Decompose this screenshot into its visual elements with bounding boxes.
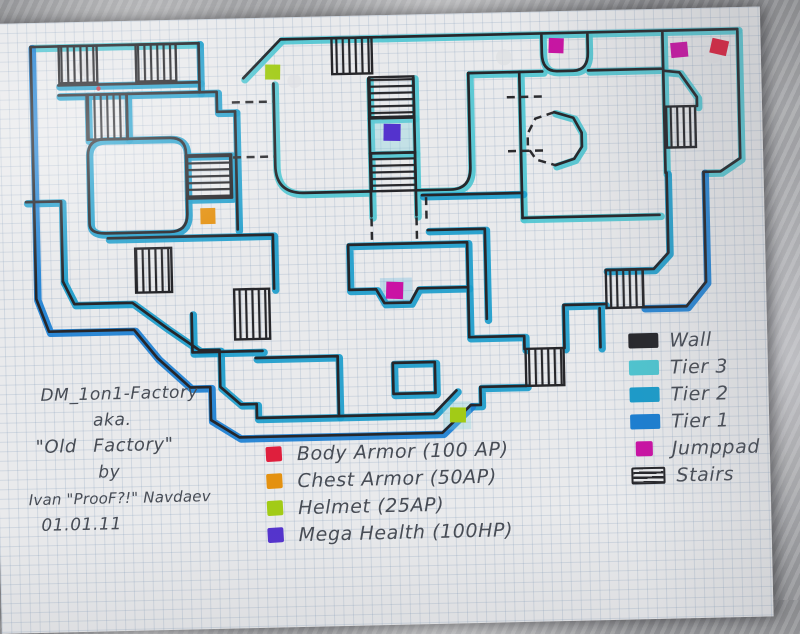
- legend-row-tier2: Tier 2: [629, 379, 759, 409]
- author-line: Ivan "ProoF?!" Navdaev: [29, 483, 212, 513]
- legend-row-tier1: Tier 1: [630, 406, 760, 436]
- jumppad-marker: [548, 38, 563, 53]
- tier-legend: Wall Tier 3 Tier 2 Tier 1 Jumppad Stairs: [628, 325, 761, 490]
- jumppad-marker: [670, 42, 688, 59]
- teleporter-circle: [527, 112, 555, 166]
- helmet-marker: [265, 64, 280, 79]
- mega-health-marker: [383, 124, 400, 141]
- legend-row-wall: Wall: [628, 325, 758, 355]
- jumppad-marker: [386, 282, 403, 299]
- tier1-swatch: [630, 414, 660, 430]
- photo-of-hand-drawn-map: { "map": { "name": "DM_1on1-Factory hand…: [0, 0, 800, 600]
- helmet-label: Helmet (25AP): [298, 493, 445, 518]
- chest-armor-swatch: [266, 473, 283, 489]
- jumppad-swatch: [636, 441, 653, 456]
- mega-health-swatch: [267, 527, 284, 543]
- stairs-label: Stairs: [676, 463, 734, 486]
- map-name: DM_1on1-Factory: [40, 379, 209, 409]
- body-armor-swatch: [265, 446, 282, 462]
- wall-swatch: [628, 333, 658, 349]
- legend-row-tier3: Tier 3: [629, 352, 759, 382]
- map-alt-name: "Old Factory": [35, 431, 210, 461]
- tier1-label: Tier 1: [671, 409, 730, 432]
- legend-row-jumppad: Jumppad: [631, 433, 761, 463]
- item-legend: Body Armor (100 AP) Chest Armor (50AP) H…: [266, 435, 514, 549]
- body-armor-label: Body Armor (100 AP): [297, 438, 509, 465]
- legend-row-stairs: Stairs: [631, 460, 761, 490]
- wall-label: Wall: [669, 328, 712, 351]
- stairs-icon: [631, 467, 665, 485]
- graph-paper-sheet: DM_1on1-Factory aka. "Old Factory" by Iv…: [0, 6, 774, 633]
- date-line: 01.01.11: [41, 509, 212, 539]
- tier3-swatch: [629, 360, 659, 376]
- jumppad-label: Jumppad: [672, 435, 761, 459]
- chest-armor-marker: [200, 208, 215, 224]
- tier3-label: Tier 3: [670, 355, 729, 378]
- chest-armor-label: Chest Armor (50AP): [297, 465, 497, 492]
- tier2-swatch: [629, 387, 659, 403]
- helmet-marker: [450, 407, 466, 422]
- mega-health-label: Mega Health (100HP): [298, 519, 513, 546]
- map-title-block: DM_1on1-Factory aka. "Old Factory" by Iv…: [40, 379, 212, 539]
- tier2-label: Tier 2: [670, 382, 729, 405]
- legend-row-mega-health: Mega Health (100HP): [267, 516, 513, 549]
- by-line: by: [98, 457, 211, 486]
- helmet-swatch: [267, 500, 284, 516]
- aka-line: aka.: [93, 405, 210, 434]
